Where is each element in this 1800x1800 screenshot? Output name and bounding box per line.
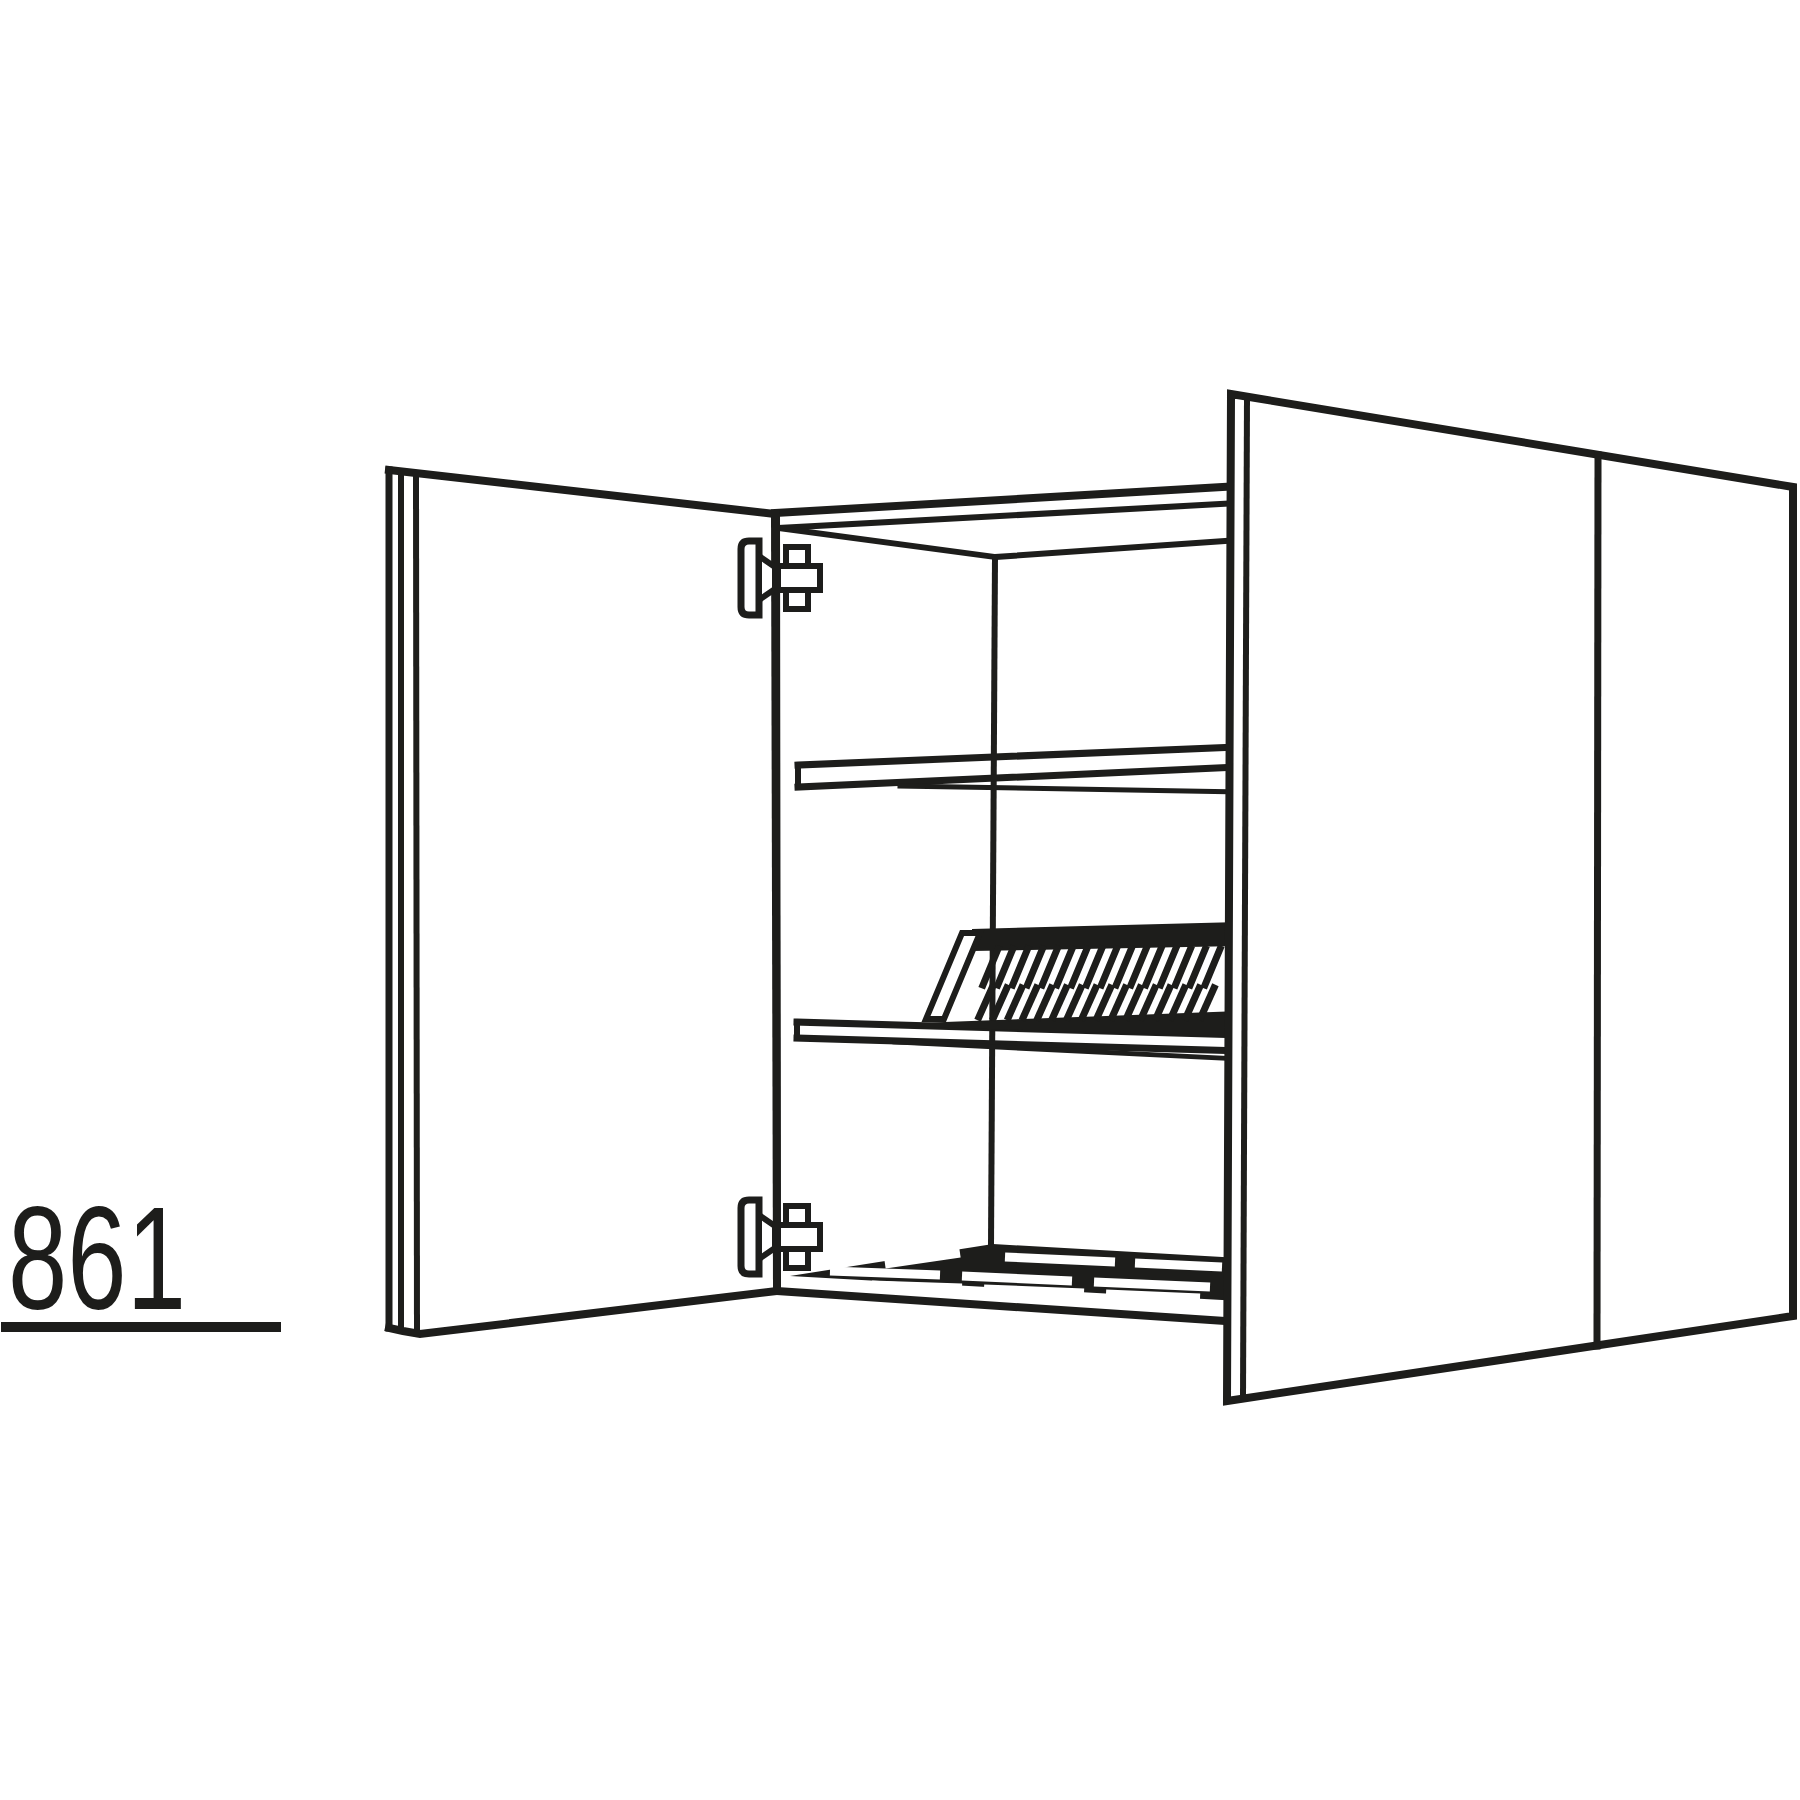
plate-rack xyxy=(865,922,1240,1037)
open-door-hinge-edge xyxy=(775,514,777,1291)
shelf-upper-bottom-edge xyxy=(798,767,1240,787)
open-door-face-left-edge xyxy=(416,476,417,1332)
open-left-door xyxy=(389,470,777,1334)
open-door-panel-fill xyxy=(389,470,777,1334)
hinge-arm xyxy=(778,566,820,590)
cabinet-carcass xyxy=(775,486,1240,1322)
shelf-upper xyxy=(798,747,1240,792)
plate-rack-end-slat xyxy=(926,933,980,1019)
right-doors-panel xyxy=(1227,394,1793,1401)
dimension-label: 861 xyxy=(8,1176,186,1340)
shelf-upper-top-edge xyxy=(798,747,1240,765)
right-doors-left-edge-inner-line xyxy=(1243,398,1247,1398)
shelf-upper-underside-line xyxy=(900,786,1240,792)
right-doors xyxy=(1227,394,1793,1401)
cabinet-diagram-page: 861 xyxy=(0,0,1800,1800)
dimension-annotation: 861 xyxy=(6,1176,276,1340)
carcass-ceiling-back-line xyxy=(995,540,1240,557)
hinge-wedge xyxy=(759,556,775,600)
wall-cabinet-line-drawing: 861 xyxy=(0,0,1800,1800)
plate-rack-slats xyxy=(979,949,1220,1017)
carcass-back-corner-edge xyxy=(991,557,995,1246)
right-doors-divider-line xyxy=(1597,455,1598,1346)
hinge-top-icon xyxy=(741,541,820,615)
